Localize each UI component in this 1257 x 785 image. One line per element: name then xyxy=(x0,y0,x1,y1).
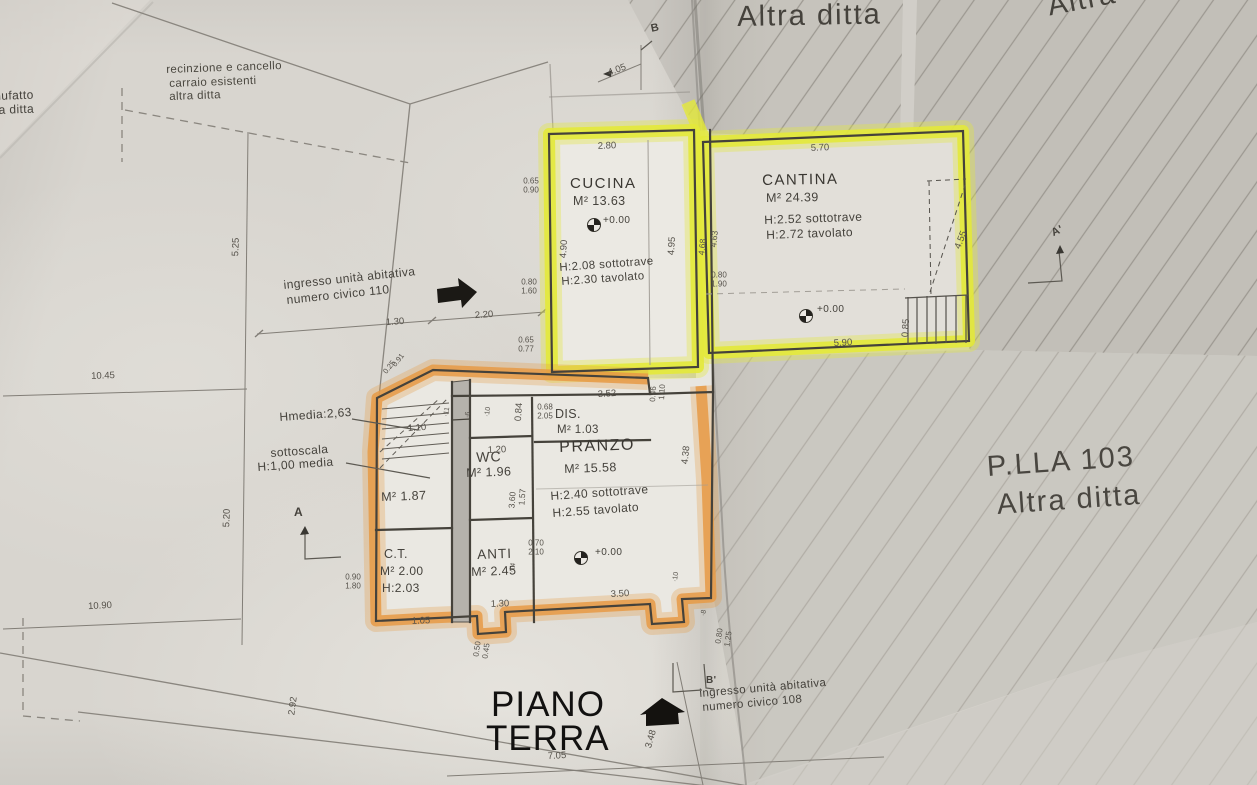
parcel-label-top-center: Altra ditta xyxy=(737,0,882,32)
room-cantina-level: +0.00 xyxy=(817,305,844,316)
dimension-label: 0.68 xyxy=(537,403,553,412)
dimension-label: 4.63 xyxy=(708,230,720,248)
dimension-label: 4.90 xyxy=(558,239,570,258)
room-pranzo-level: +0.00 xyxy=(595,548,622,559)
room-cantina-area: M² 24.39 xyxy=(766,191,819,205)
dimension-label: 0.90 xyxy=(345,573,361,582)
dimension-label: 4.38 xyxy=(680,445,693,465)
dimension-label: 1.05 xyxy=(412,615,431,627)
dimension-label: 1.80 xyxy=(345,582,361,591)
dimension-label: 3.52 xyxy=(597,388,616,400)
section-marker-b-prime: B' xyxy=(706,676,716,687)
dimension-label: 10.90 xyxy=(88,600,112,612)
room-anti-name: ANTI xyxy=(477,547,512,562)
dimension-label: 0.77 xyxy=(518,345,534,354)
room-ct-height: H:2.03 xyxy=(382,582,420,595)
benchmark-icon-cantina xyxy=(800,310,813,323)
dimension-label: 4.95 xyxy=(666,236,678,255)
section-marker-a: A xyxy=(294,506,303,519)
dimension-label: 5.90 xyxy=(833,337,852,349)
dimension-label: 5.70 xyxy=(811,142,830,154)
fence-note-line3: altra ditta xyxy=(169,89,221,103)
dimension-label: 0.85 xyxy=(900,318,912,337)
dimension-label: 1.57 xyxy=(516,488,527,505)
dimension-label: 0.70 xyxy=(528,539,544,548)
room-cucina-level: +0.00 xyxy=(603,216,630,227)
dimension-label: 0.65 xyxy=(523,177,539,186)
benchmark-icon-cucina xyxy=(588,219,601,232)
room-pranzo-area: M² 15.58 xyxy=(564,461,617,476)
room-cantina-h-tavolato: H:2.72 tavolato xyxy=(766,226,853,242)
room-dis-area: M² 1.03 xyxy=(557,424,599,436)
dimension-label: 1.60 xyxy=(521,287,537,296)
edge-left-note-line1: nufatto xyxy=(0,89,34,103)
room-cucina-area: M² 13.63 xyxy=(573,195,626,208)
dimension-label: 10.45 xyxy=(91,370,115,382)
room-understair-area: M² 1.87 xyxy=(381,489,427,504)
dimension-label: 0.80 xyxy=(711,271,727,280)
floor-plan-drawing xyxy=(0,0,1257,785)
dimension-label: 1.10 xyxy=(407,422,426,434)
room-cantina-name: CANTINA xyxy=(762,172,839,189)
dimension-label: ·6 xyxy=(464,411,472,418)
dimension-label: 2.05 xyxy=(537,412,553,421)
dimension-label: 3.50 xyxy=(610,588,629,600)
dimension-label: 0.90 xyxy=(523,186,539,195)
dimension-label: 5.20 xyxy=(221,509,233,528)
room-ct-area: M² 2.00 xyxy=(380,565,423,578)
room-ct-name: C.T. xyxy=(384,548,408,561)
room-dis-name: DIS. xyxy=(555,408,581,421)
dimension-label: 0.80 xyxy=(521,278,537,287)
dimension-label: 1.30 xyxy=(491,598,510,610)
dimension-label: 1.20 xyxy=(488,444,507,456)
dimension-label: 2.20 xyxy=(474,309,493,321)
room-cucina-name: CUCINA xyxy=(570,176,637,192)
dimension-label: 2.80 xyxy=(598,140,617,152)
dimension-label: 7.05 xyxy=(547,750,566,762)
dimension-label: 5.25 xyxy=(230,238,242,257)
dimension-label: 1.30 xyxy=(385,316,404,328)
dimension-label: 1.90 xyxy=(711,280,727,289)
dimension-label: ·8 xyxy=(700,609,708,616)
dimension-label: 0.65 xyxy=(518,336,534,345)
benchmark-icon-pranzo xyxy=(575,552,588,565)
edge-left-note-line2: ra ditta xyxy=(0,103,34,117)
dimension-label: 0.84 xyxy=(513,402,525,421)
dimension-label: 4.68 xyxy=(696,238,708,256)
room-wc-area: M² 1.96 xyxy=(466,465,512,480)
floor-plan-sheet: Altra ditta Altra ditta recinzione e can… xyxy=(0,0,1257,785)
dimension-label: 1.10 xyxy=(657,384,667,400)
dimension-label: 2.10 xyxy=(528,548,544,557)
room-pranzo-name: PRANZO xyxy=(559,437,635,456)
entrance-arrow-110-icon xyxy=(437,278,477,308)
